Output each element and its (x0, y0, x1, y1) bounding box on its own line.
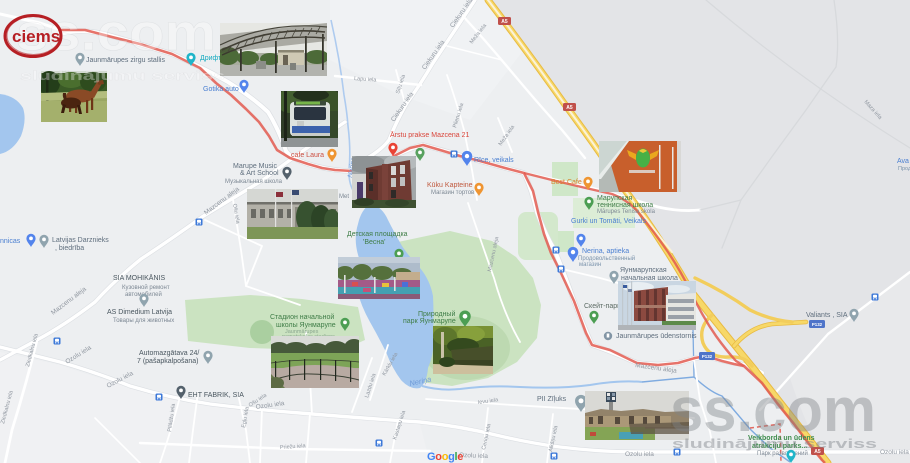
svg-text:Музыкальная школа: Музыкальная школа (225, 179, 283, 185)
svg-text:'Весна': 'Весна' (363, 239, 386, 246)
svg-text:Кузовной ремонт: Кузовной ремонт (122, 284, 170, 291)
svg-text:A5: A5 (501, 19, 508, 25)
svg-text:, biedrība: , biedrība (55, 245, 84, 252)
svg-text:Google: Google (427, 451, 463, 463)
svg-text:Marupe Music: Marupe Music (233, 163, 277, 170)
svg-text:Rīce, veikals: Rīce, veikals (474, 157, 514, 164)
svg-text:Kūku Kapteine: Kūku Kapteine (427, 182, 473, 189)
svg-text:7 (pašapkalpošana): 7 (pašapkalpošana) (137, 358, 199, 365)
svg-text:cafe Laura: cafe Laura (291, 152, 324, 159)
svg-text:sludinājumu serviss: sludinājumu serviss (672, 436, 877, 451)
svg-text:Прод: Прод (898, 166, 910, 172)
svg-text:EHT FABRIK, SIA: EHT FABRIK, SIA (188, 392, 244, 399)
svg-text:P132: P132 (812, 322, 823, 327)
svg-text:Gurki un Tomāti, Veikals: Gurki un Tomāti, Veikals (571, 218, 646, 225)
svg-text:Ozolu iela: Ozolu iela (625, 451, 654, 458)
svg-text:парк Яунмарупе: парк Яунмарупе (403, 318, 456, 325)
svg-text:Ava: Ava (897, 158, 909, 165)
svg-text:теннисная школа: теннисная школа (597, 202, 653, 209)
svg-text:Детская площадка: Детская площадка (347, 231, 408, 238)
svg-text:Марупская: Марупская (597, 195, 633, 202)
svg-text:sludinājumu serviss: sludinājumu serviss (20, 68, 225, 83)
svg-text:Mārupes Tenisa skola: Mārupes Tenisa skola (597, 209, 656, 215)
svg-text:ss.com: ss.com (670, 376, 876, 445)
svg-text:школы Яунмарупе: школы Яунмарупе (276, 322, 336, 329)
svg-text:SIA MOHIKĀNIS: SIA MOHIKĀNIS (113, 274, 165, 282)
svg-text:A5: A5 (566, 105, 573, 111)
svg-text:магазин: магазин (579, 262, 601, 268)
svg-text:Valiants , SIA: Valiants , SIA (806, 312, 848, 319)
svg-text:Природный: Природный (418, 310, 455, 318)
svg-text:Ozolu iela: Ozolu iela (459, 452, 489, 460)
svg-text:Gotika auto: Gotika auto (203, 86, 239, 93)
svg-text:ciems: ciems (12, 27, 60, 46)
svg-text:Ozolu iela: Ozolu iela (880, 449, 909, 456)
svg-text:Ārstu prakse Mazcena 21: Ārstu prakse Mazcena 21 (390, 131, 469, 139)
svg-text:Товары для животных: Товары для животных (113, 318, 174, 324)
svg-text:Яунмарупская: Яунмарупская (620, 267, 667, 274)
svg-text:Automazgātava 24/: Automazgātava 24/ (139, 350, 199, 357)
svg-text:Latvijas Darznieks: Latvijas Darznieks (52, 237, 109, 244)
svg-text:Продовольственный: Продовольственный (578, 255, 635, 262)
svg-text:nnicas: nnicas (0, 238, 21, 245)
svg-text:Nerina, aptieka: Nerina, aptieka (582, 248, 629, 255)
svg-text:Стадион начальной: Стадион начальной (270, 313, 334, 321)
svg-text:Парк развлечений: Парк развлечений (757, 450, 808, 457)
svg-text:Best Cafe: Best Cafe (551, 179, 582, 186)
svg-text:Магазин тортов: Магазин тортов (431, 190, 474, 196)
svg-text:& Art School: & Art School (240, 170, 279, 177)
svg-text:PII Zīļuks: PII Zīļuks (537, 396, 567, 403)
svg-text:Jaunmārupes ūdenstornis: Jaunmārupes ūdenstornis (616, 333, 697, 340)
svg-text:Met: Met (339, 194, 349, 200)
svg-text:Скейт-парк: Скейт-парк (584, 302, 621, 310)
svg-text:P132: P132 (702, 354, 713, 359)
svg-text:начальная школа: начальная школа (621, 275, 678, 282)
svg-text:AS Dimedium Latvija: AS Dimedium Latvija (107, 309, 172, 316)
